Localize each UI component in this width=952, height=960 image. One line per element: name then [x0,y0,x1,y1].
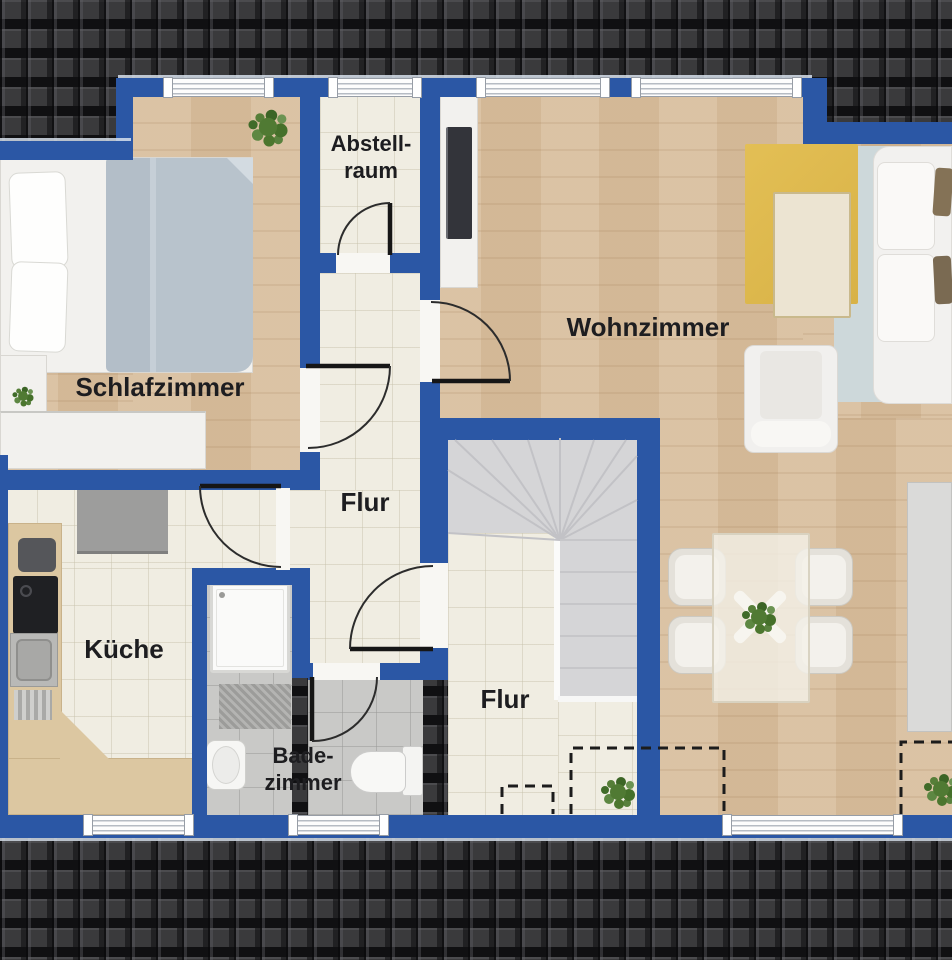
abstellraum-label-line2: raum [344,158,398,183]
sofa-pillow [932,167,952,216]
stair-handrail [554,533,560,700]
plant-bottom-right-icon [933,781,949,797]
badezimmer-label: Bade- zimmer [243,742,363,796]
door-opening-flur-lower [420,563,448,648]
plant-flur-lower-icon [610,784,626,800]
kueche-label: Küche [64,634,184,664]
washbasin-bowl [212,746,240,784]
armchair-back [751,421,831,447]
door-opening-badezimmer [313,663,380,680]
door-opening-kueche [276,488,290,570]
stair-winder-area [448,440,560,542]
door-opening-abstellraum [336,253,390,273]
coffee-machine-icon [18,538,56,572]
sofa-pillow [933,256,952,305]
wall-schlafzimmer-kueche [0,470,320,490]
window-kueche [85,815,192,835]
door-opening-schlafzimmer [300,368,320,452]
window-schlafzimmer [165,78,272,97]
stair-nosing [558,696,637,702]
wall-step-left-h [0,141,131,160]
bed-pillow [8,171,68,269]
window-wohnzimmer-1 [478,78,608,97]
cooktop-icon [13,576,58,634]
window-wohnzimmer-2 [633,78,800,97]
shower-drain-icon [219,592,225,598]
flur-lower-label: Flur [462,684,548,714]
wall-step-right-h [803,122,952,144]
window-abstellraum [330,78,420,97]
wall-stair-north [420,418,660,440]
dresser [0,411,206,469]
schlafzimmer-label: Schlafzimmer [38,372,282,402]
plant-dining-icon [751,609,767,625]
wall-left [0,455,8,838]
sideboard [907,482,952,732]
sink-drainboard-icon [14,690,52,720]
kitchen-counter-bottom [8,758,200,815]
kitchen-island [77,490,168,554]
bed-blanket [106,158,253,372]
kitchen-sink-basin [16,639,52,681]
wohnzimmer-label: Wohnzimmer [548,312,748,342]
tv-icon [446,127,472,239]
flur-lower-floor-east [558,698,637,816]
sofa-cushion [877,162,935,250]
coffee-table [773,192,851,318]
flur-lower-floor [448,533,560,816]
badezimmer-label-line1: Bade- [272,743,333,768]
window-badezimmer [290,815,387,835]
floorplan-canvas: Schlafzimmer Abstell- raum Wohnzimmer Fl… [0,0,952,960]
window-wohnzimmer-3 [724,815,901,835]
abstellraum-label-line1: Abstell- [331,131,412,156]
bed-pillow [8,261,68,353]
flur-upper-floor [318,273,423,490]
sofa-cushion [877,254,935,342]
wall-kueche-bad [192,568,207,838]
flur-upper-label: Flur [322,487,408,517]
stair-flight [558,440,637,702]
shower-tray [216,589,284,667]
plant-schlafzimmer-icon [259,118,277,136]
badezimmer-label-line2: zimmer [264,770,341,795]
abstellraum-label: Abstell- raum [312,130,430,184]
wall-stair-east [637,418,660,838]
armchair-seat [760,351,822,419]
plant-nightstand-icon [18,391,28,401]
wall-shower-east [292,568,310,678]
bath-mat [219,684,291,729]
door-opening-wohnzimmer [420,300,440,382]
